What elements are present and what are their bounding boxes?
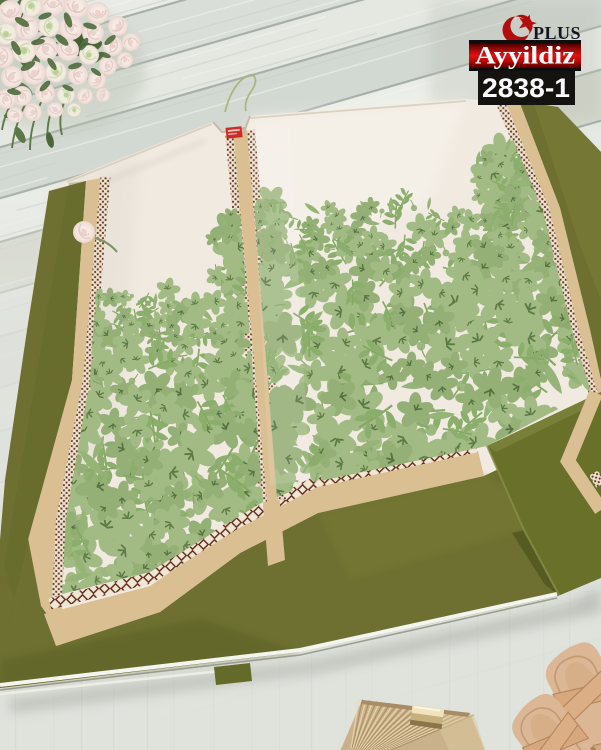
svg-text:Ayyildiz: Ayyildiz [475,43,575,70]
svg-text:2838-1: 2838-1 [482,73,570,103]
